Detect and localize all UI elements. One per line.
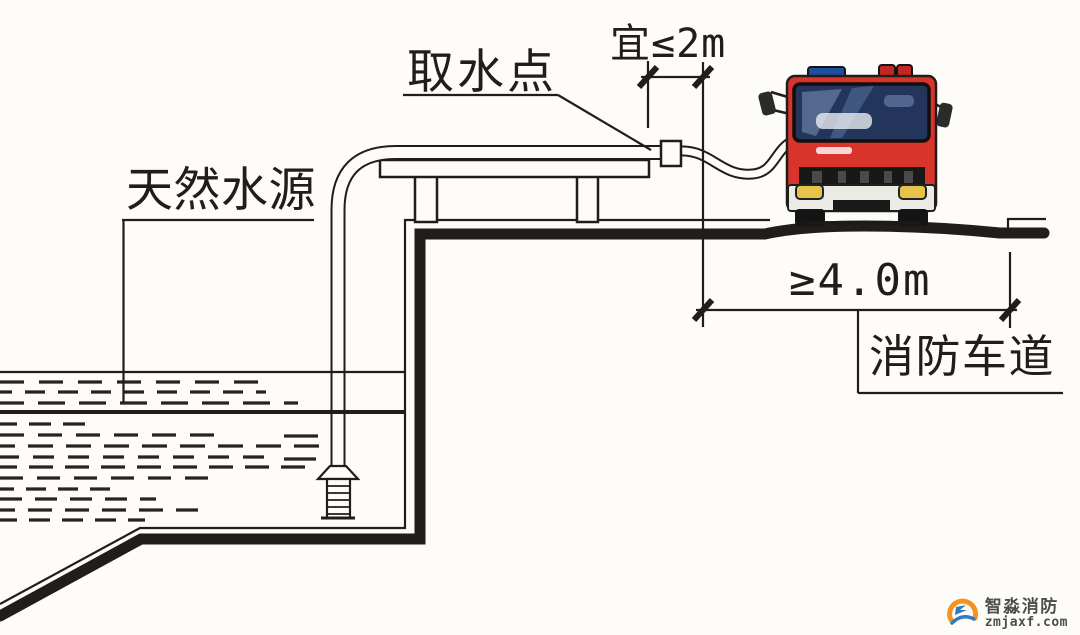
water-hatching	[0, 382, 330, 520]
dimension-text: 宜≤2m	[610, 21, 726, 67]
suction-pipe	[318, 153, 664, 519]
platform-slab	[380, 160, 649, 177]
dimension-lane-width: ≥4.0m	[694, 252, 1019, 328]
hose-coupling	[661, 141, 681, 166]
pipe-bore	[338, 153, 664, 467]
hose-assembly	[661, 140, 794, 174]
fire-truck	[758, 65, 954, 226]
watermark: 智淼消防 zmjaxf.com	[947, 598, 1068, 630]
label-text: 取水点	[407, 47, 557, 99]
label-fire-lane: 消防车道	[858, 310, 1063, 393]
strainer-basket	[327, 479, 350, 518]
headlight-right	[899, 185, 926, 199]
label-leader	[558, 95, 651, 150]
truck-front-marking	[816, 147, 852, 154]
watermark-brand: 智淼消防	[985, 598, 1068, 616]
windshield-reflection-3	[816, 113, 872, 129]
watermark-text: 智淼消防 zmjaxf.com	[985, 598, 1068, 629]
label-natural-water-source: 天然水源	[122, 165, 316, 404]
brand-logo-icon	[947, 598, 979, 630]
pipe-outline	[338, 153, 664, 467]
mirror-left	[758, 91, 777, 117]
label-text: 消防车道	[869, 332, 1055, 382]
platform-post-left	[415, 176, 437, 222]
dimension-text: ≥4.0m	[789, 255, 931, 306]
watermark-url: zmjaxf.com	[985, 616, 1068, 630]
headlight-left	[796, 185, 823, 199]
intake-platform	[380, 160, 649, 222]
platform-post-right	[577, 176, 598, 222]
label-text: 天然水源	[126, 165, 316, 217]
road-edge-step	[1008, 219, 1046, 228]
license-plate	[833, 200, 890, 211]
strainer-flare	[318, 466, 358, 479]
windshield-reflection-4	[884, 95, 914, 107]
diagram-canvas: 宜≤2m ≥4.0m 消防车道 取水点 天然水源 智淼消防 zmjaxf.com	[0, 0, 1080, 635]
fire-water-intake-diagram: 宜≤2m ≥4.0m 消防车道 取水点 天然水源	[0, 0, 1080, 635]
